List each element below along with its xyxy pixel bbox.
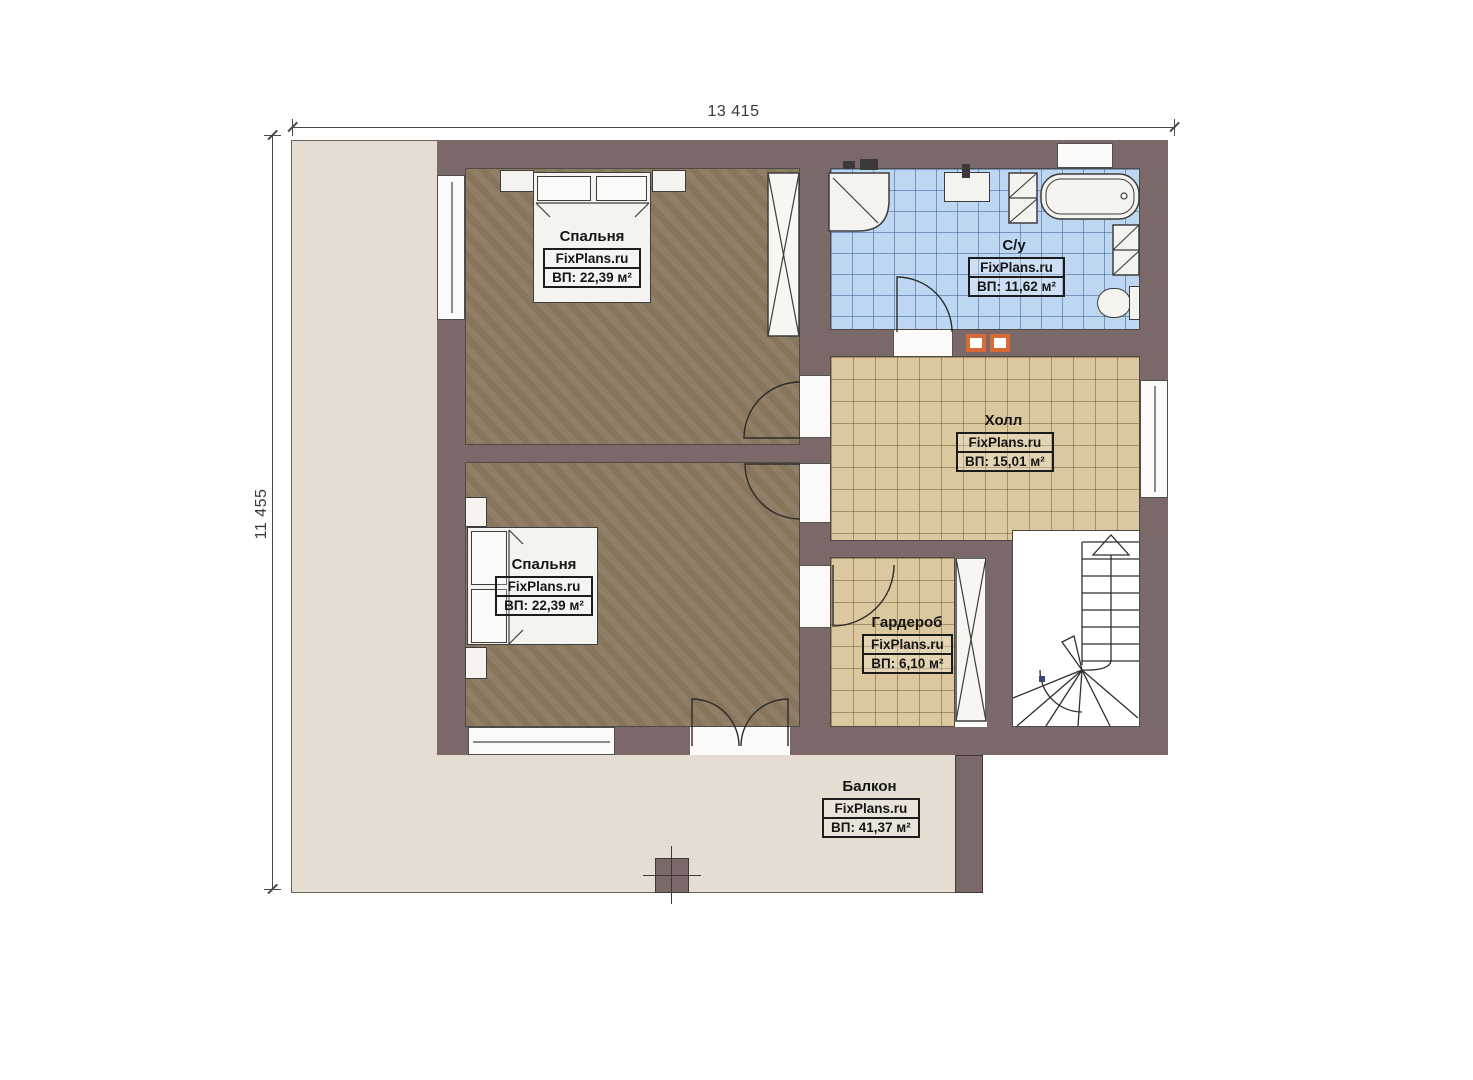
brand-watermark: FixPlans.ru [864,636,951,653]
balcony-side-wall [955,755,983,893]
dimension-height-label: 11 455 [253,474,271,554]
post-axis-line [671,846,672,904]
room-label-balcony: Балкон FixPlans.ru ВП: 41,37 м² [822,778,917,838]
shower-head-icon [843,161,855,169]
wall-niche-above-bathtub [1057,143,1113,168]
stairwell-floor [1013,531,1140,727]
brand-watermark: FixPlans.ru [545,250,639,267]
room-area: ВП: 22,39 м² [497,595,591,614]
room-label-bathroom: С/у FixPlans.ru ВП: 11,62 м² [968,237,1060,297]
window-bedroom-bottom [468,727,615,755]
room-info-box: FixPlans.ru ВП: 41,37 м² [822,798,920,838]
post-axis-line [643,875,701,876]
staircase [1012,530,1140,727]
room-name: Холл [956,412,1051,429]
doorway-balcony [690,727,790,755]
nightstand [500,170,534,192]
bathroom-cabinet-2 [1112,224,1140,276]
brand-watermark: FixPlans.ru [958,434,1052,451]
floor-heating-marker [966,334,986,352]
doorway-bedroom-bottom [800,463,830,523]
room-info-box: FixPlans.ru ВП: 22,39 м² [543,248,641,288]
room-area: ВП: 41,37 м² [824,817,918,836]
wall-center-vertical [800,168,830,727]
room-name: Спальня [494,556,594,573]
shower [828,172,890,232]
room-info-box: FixPlans.ru ВП: 15,01 м² [956,432,1054,472]
window-glazing [451,182,453,314]
brand-watermark: FixPlans.ru [970,259,1063,276]
faucet-icon [962,164,970,178]
room-area: ВП: 6,10 м² [864,653,951,672]
floor-heating-marker [990,334,1010,352]
window-glazing [473,741,609,743]
shower-mixer-icon [860,159,878,170]
room-name: Спальня [536,228,648,245]
nightstand [465,497,487,527]
room-label-hall: Холл FixPlans.ru ВП: 15,01 м² [956,412,1051,472]
toilet-tank [1129,286,1140,320]
wall-stairwell-west [987,541,1012,727]
window-bedroom-top [437,175,465,320]
room-area: ВП: 11,62 м² [970,276,1063,295]
room-info-box: FixPlans.ru ВП: 11,62 м² [968,257,1065,297]
bathroom-cabinet [1008,172,1038,224]
doorway-bedroom-top [800,375,830,438]
room-label-bedroom-bottom: Спальня FixPlans.ru ВП: 22,39 м² [494,556,594,616]
window-glazing [1154,386,1156,493]
room-label-bedroom-top: Спальня FixPlans.ru ВП: 22,39 м² [536,228,648,288]
dimension-height-line [272,135,273,890]
ventilation-shaft-bedroom [767,172,800,337]
ventilation-shaft-wardrobe [955,557,987,722]
room-area: ВП: 22,39 м² [545,267,639,286]
nightstand [465,647,487,679]
pillow [596,176,647,201]
pillow [537,176,591,201]
room-name: С/у [968,237,1060,254]
room-name: Гардероб [862,614,952,631]
wall-wardrobe-north [830,541,1012,557]
room-label-wardrobe: Гардероб FixPlans.ru ВП: 6,10 м² [862,614,952,674]
room-area: ВП: 15,01 м² [958,451,1052,470]
room-name: Балкон [822,778,917,795]
window-hall [1140,380,1168,498]
dimension-width-line [292,127,1175,128]
toilet-bowl [1097,288,1131,318]
stairs-start-marker [1039,676,1045,682]
doorway-bathroom [893,330,953,356]
balcony-terrace-left [291,140,437,893]
room-info-box: FixPlans.ru ВП: 22,39 м² [495,576,593,616]
brand-watermark: FixPlans.ru [824,800,918,817]
room-info-box: FixPlans.ru ВП: 6,10 м² [862,634,953,674]
dimension-width-label: 13 415 [292,103,1175,121]
brand-watermark: FixPlans.ru [497,578,591,595]
doorway-wardrobe [800,565,830,628]
nightstand [652,170,686,192]
bathtub [1040,173,1140,220]
wall-between-bedrooms [465,445,800,462]
floor-plan-canvas: 13 415 11 455 [0,0,1473,1080]
